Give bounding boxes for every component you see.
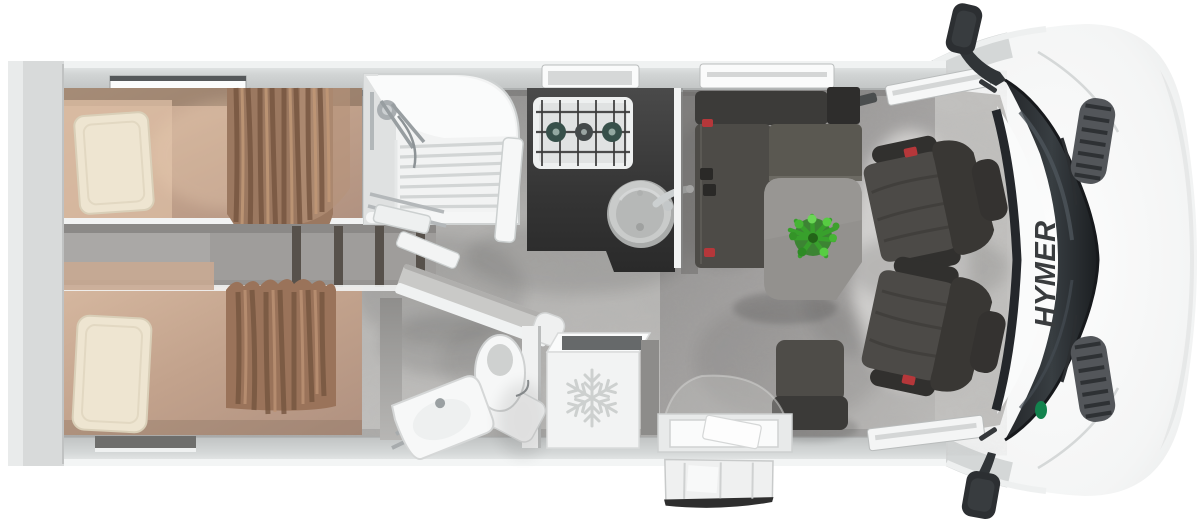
svg-text:HYMER: HYMER <box>1030 220 1062 327</box>
